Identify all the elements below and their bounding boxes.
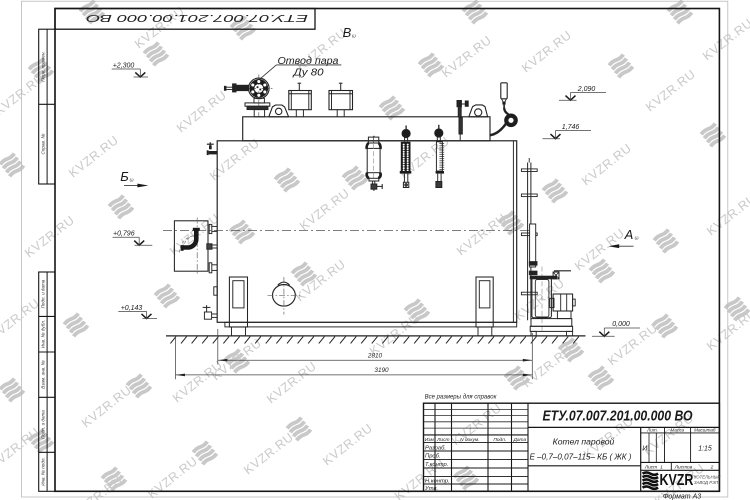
svg-text:Лист: Лист [436, 437, 449, 443]
svg-text:+2,300: +2,300 [113, 62, 135, 69]
svg-text:Н.контр.: Н.контр. [425, 478, 450, 484]
svg-text:Проб.: Проб. [425, 454, 441, 460]
svg-text:Е –0,7–0,07–115– КБ ( ЖК ): Е –0,7–0,07–115– КБ ( ЖК ) [530, 452, 632, 461]
svg-text:Изм: Изм [425, 437, 435, 443]
svg-text:Т.контр.: Т.контр. [425, 462, 448, 468]
svg-text:Утв.: Утв. [424, 486, 438, 492]
svg-text:КОТЕЛЬНЫЙ: КОТЕЛЬНЫЙ [694, 474, 720, 479]
svg-text:ω: ω [635, 236, 639, 242]
svg-text:Формат А3: Формат А3 [663, 493, 701, 500]
svg-text:N докум.: N докум. [460, 437, 479, 443]
svg-text:1:15: 1:15 [698, 446, 712, 453]
svg-text:В: В [343, 25, 352, 40]
svg-text:1: 1 [660, 465, 663, 471]
svg-text:Лит.: Лит. [646, 428, 658, 433]
svg-text:Ду 80: Ду 80 [292, 67, 324, 78]
svg-text:ω: ω [130, 178, 134, 184]
svg-text:Листов: Листов [674, 465, 693, 471]
svg-text:Б: Б [120, 169, 129, 184]
svg-text:+0,796: +0,796 [113, 231, 135, 238]
svg-text:Взам. инв. №: Взам. инв. № [41, 360, 46, 388]
svg-text:+0,143: +0,143 [121, 305, 143, 312]
svg-text:Подп.: Подп. [493, 437, 506, 443]
svg-text:Перв. примен.: Перв. примен. [41, 51, 46, 82]
svg-text:ЕТУ.07.007.201.00.000 ВО: ЕТУ.07.007.201.00.000 ВО [86, 12, 308, 23]
svg-text:А: А [624, 227, 634, 242]
svg-text:ЗАВОД РЭП: ЗАВОД РЭП [694, 480, 719, 485]
svg-text:2810: 2810 [367, 353, 383, 360]
svg-text:Отвод пара: Отвод пара [278, 56, 339, 67]
svg-text:Лист: Лист [644, 465, 657, 471]
svg-text:2: 2 [710, 465, 714, 471]
svg-text:KVZR: KVZR [660, 471, 694, 489]
svg-text:3190: 3190 [374, 367, 389, 374]
svg-text:ЕТУ.07.007.201.00.000 ВО: ЕТУ.07.007.201.00.000 ВО [543, 408, 694, 424]
svg-text:Разраб.: Разраб. [425, 445, 446, 451]
svg-text:0,000: 0,000 [612, 321, 630, 328]
svg-text:Справ. №: Справ. № [41, 134, 46, 155]
svg-text:Инв. № подл.: Инв. № подл. [41, 457, 46, 486]
svg-text:Инв. № дубл.: Инв. № дубл. [41, 320, 46, 348]
svg-text:1,746: 1,746 [562, 124, 580, 131]
svg-text:Все размеры для справок: Все размеры для справок [425, 395, 498, 401]
svg-text:ω: ω [352, 34, 356, 40]
svg-text:Масса: Масса [671, 428, 685, 433]
svg-text:Подп. и дата: Подп. и дата [41, 410, 46, 439]
svg-text:Котел паровой: Котел паровой [553, 437, 615, 447]
svg-text:Дата: Дата [512, 437, 526, 443]
svg-text:2,090: 2,090 [577, 86, 596, 93]
svg-text:Подп. и дата: Подп. и дата [41, 279, 46, 308]
svg-text:Масштаб: Масштаб [694, 428, 716, 433]
